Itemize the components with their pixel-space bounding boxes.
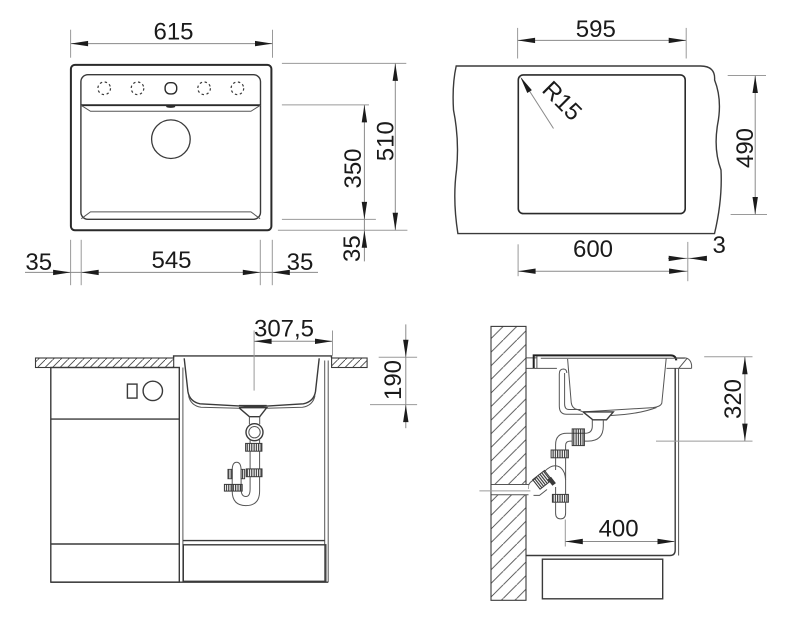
svg-text:3: 3 xyxy=(713,232,726,259)
svg-text:545: 545 xyxy=(151,247,191,274)
svg-text:35: 35 xyxy=(287,249,314,276)
svg-text:490: 490 xyxy=(732,128,759,168)
svg-text:350: 350 xyxy=(340,148,367,188)
svg-text:595: 595 xyxy=(576,16,616,43)
svg-text:400: 400 xyxy=(599,515,639,542)
svg-text:615: 615 xyxy=(153,19,193,46)
svg-text:35: 35 xyxy=(339,235,366,262)
svg-text:190: 190 xyxy=(380,360,407,400)
svg-text:R15: R15 xyxy=(537,76,587,126)
svg-text:307,5: 307,5 xyxy=(254,316,314,343)
svg-text:510: 510 xyxy=(372,121,399,161)
svg-text:600: 600 xyxy=(573,236,613,263)
svg-text:320: 320 xyxy=(720,379,747,419)
svg-text:35: 35 xyxy=(25,249,52,276)
